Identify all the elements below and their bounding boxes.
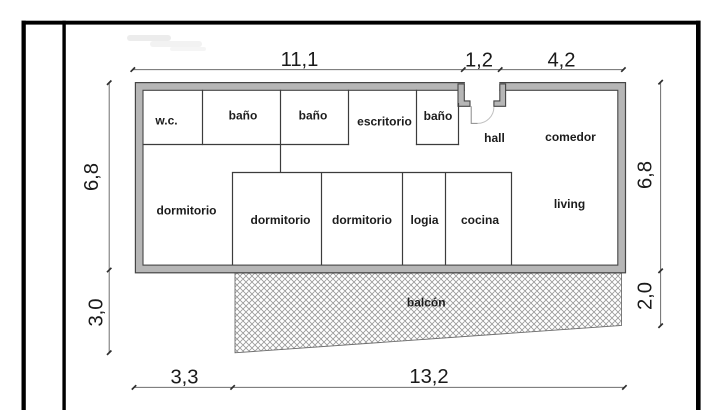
svg-text:11,1: 11,1 bbox=[281, 49, 319, 71]
svg-text:dormitorio: dormitorio bbox=[332, 213, 392, 227]
svg-text:3,0: 3,0 bbox=[86, 298, 108, 326]
svg-text:comedor: comedor bbox=[545, 130, 596, 144]
svg-text:escritorio: escritorio bbox=[357, 115, 412, 129]
svg-text:13,2: 13,2 bbox=[409, 366, 448, 388]
svg-text:2,0: 2,0 bbox=[635, 282, 657, 310]
svg-text:6,8: 6,8 bbox=[635, 161, 657, 189]
svg-text:3,3: 3,3 bbox=[170, 366, 198, 388]
svg-text:balcón: balcón bbox=[407, 295, 446, 309]
svg-text:cocina: cocina bbox=[461, 213, 499, 227]
svg-text:4,2: 4,2 bbox=[547, 50, 575, 72]
svg-text:hall: hall bbox=[484, 131, 505, 145]
svg-text:baño: baño bbox=[299, 109, 328, 123]
svg-text:baño: baño bbox=[424, 109, 453, 123]
svg-text:living: living bbox=[554, 197, 585, 211]
svg-text:dormitorio: dormitorio bbox=[157, 204, 217, 218]
svg-text:logia: logia bbox=[410, 213, 438, 227]
svg-text:baño: baño bbox=[229, 109, 258, 123]
svg-text:dormitorio: dormitorio bbox=[251, 213, 311, 227]
svg-text:6,8: 6,8 bbox=[81, 163, 103, 191]
svg-text:w.c.: w.c. bbox=[154, 113, 177, 127]
svg-text:1,2: 1,2 bbox=[465, 50, 493, 72]
